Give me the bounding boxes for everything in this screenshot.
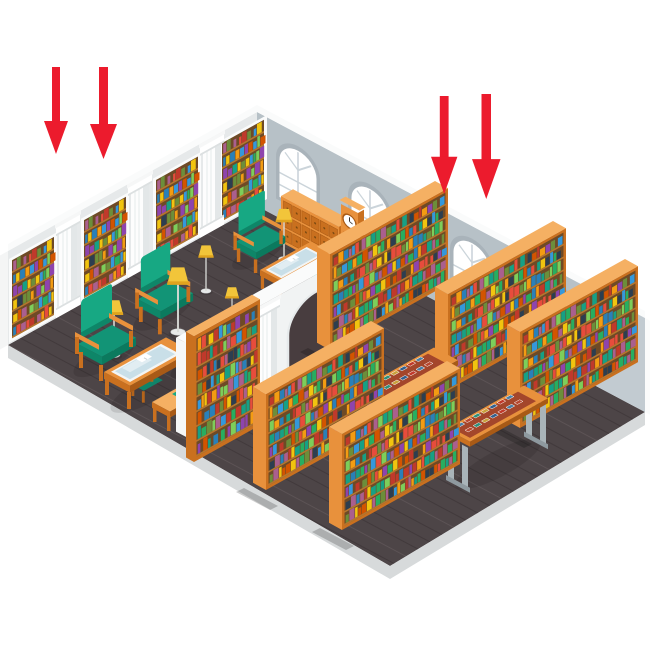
back-wall-end-cap xyxy=(645,318,650,415)
isometric-library-scene xyxy=(0,0,650,650)
library-illustration xyxy=(0,0,650,650)
left-wall-end-cap xyxy=(0,251,8,350)
